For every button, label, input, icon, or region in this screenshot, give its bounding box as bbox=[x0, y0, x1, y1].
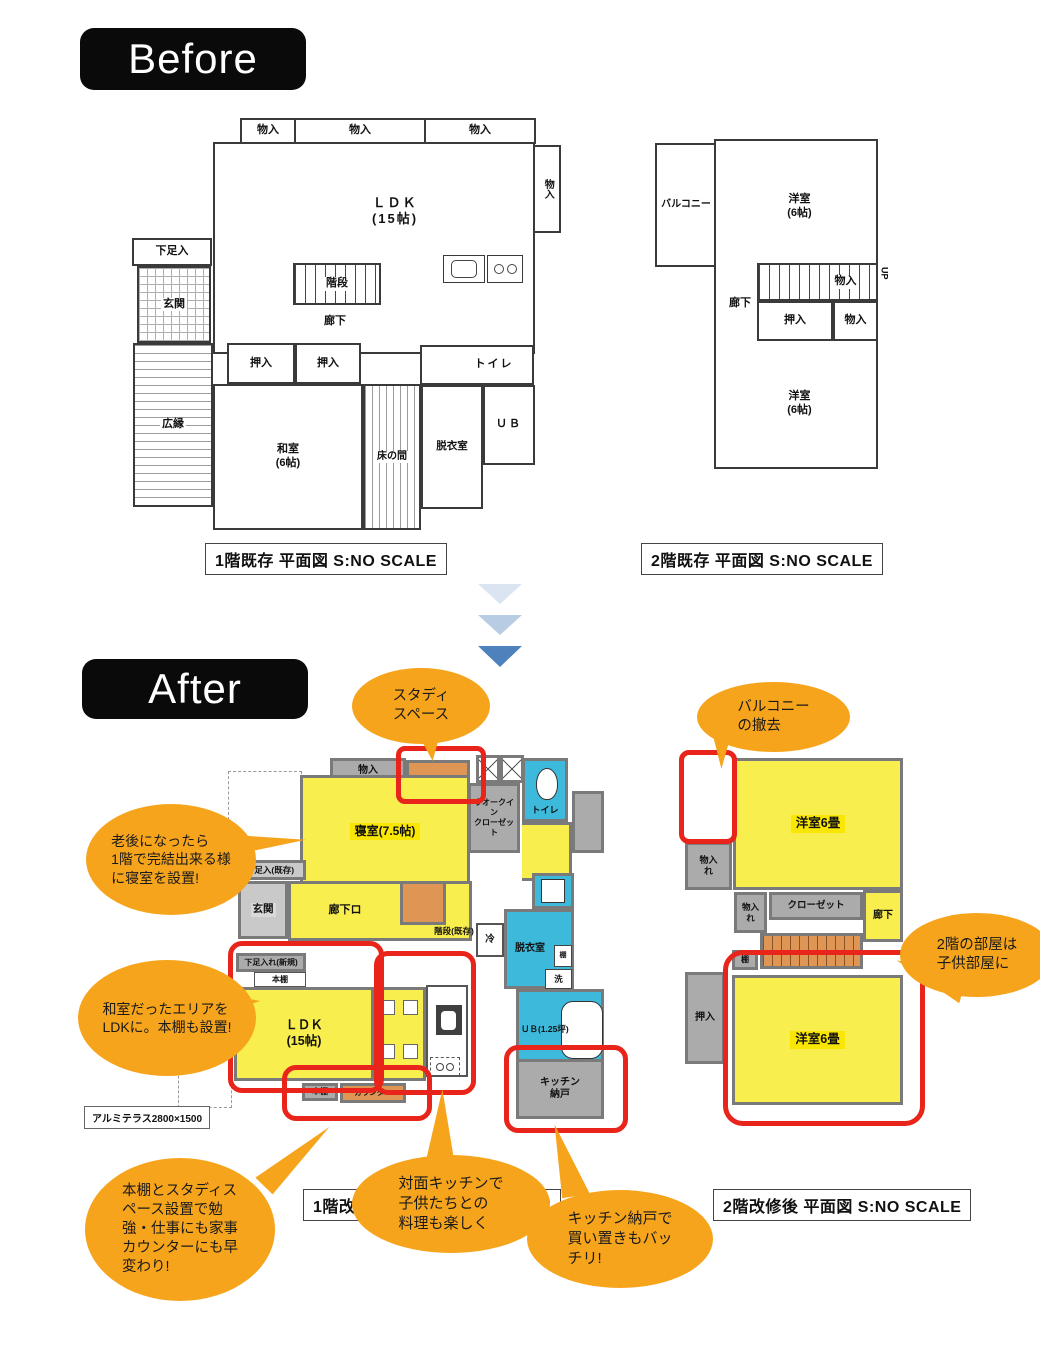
room-toilet: トイレ bbox=[420, 345, 534, 385]
room-rouka-2f-after: 廊下 bbox=[863, 890, 903, 942]
bubble-balcony-removal: バルコニー の撤去 bbox=[697, 682, 850, 752]
kitchen-sink-icon bbox=[443, 255, 485, 283]
down-arrow-icon-mid bbox=[478, 615, 522, 635]
kitchen-sink-after-icon bbox=[436, 1005, 462, 1035]
washstand-area bbox=[532, 873, 574, 909]
label-genkan-after: 玄関 bbox=[251, 903, 276, 916]
bubble-kitchen: 対面キッチンで 子供たちとの 料理も楽しく bbox=[352, 1155, 550, 1253]
caption-after-f2: 2階改修後 平面図 S:NO SCALE bbox=[713, 1189, 971, 1221]
room-storage-right: 物入 bbox=[533, 145, 561, 233]
after-badge-label: After bbox=[148, 665, 242, 713]
bubble-pantry: キッチン納戸で 買い置きもバッ チリ! bbox=[527, 1190, 713, 1288]
chair-icon bbox=[380, 1000, 395, 1015]
room-storage-2: 物入 bbox=[294, 118, 426, 144]
room-wic: ウオークイン クローゼット bbox=[468, 783, 520, 853]
bubble-study: スタディ スペース bbox=[352, 668, 490, 744]
closet-x-box bbox=[500, 755, 524, 783]
bookshelf-top: 本棚 bbox=[254, 972, 306, 987]
closet-x-box bbox=[476, 755, 500, 783]
room-closet-after: クローゼット bbox=[769, 892, 863, 920]
room-geta: 下足入 bbox=[132, 238, 212, 266]
label-toilet: トイレ bbox=[475, 358, 514, 372]
room-shinshitsu: 寝室(7.5帖) bbox=[300, 775, 470, 887]
before-floor2-plan: バルコニー 洋室 (6帖) 物入 UP 廊下 押入 物入 洋室 (6帖) bbox=[650, 135, 912, 505]
room-kaidan: 階段 bbox=[293, 263, 381, 305]
room-datsuishitsu: 脱衣室 bbox=[421, 385, 483, 509]
stove-burner-icon bbox=[436, 1063, 444, 1071]
label-datsuishitsu-after: 脱衣室 bbox=[515, 943, 545, 956]
bubble-ldk: 和室だったエリアを LDKに。本棚も設置! bbox=[78, 960, 256, 1076]
room-stairs: 物入 bbox=[757, 263, 878, 301]
room-toilet-after: トイレ bbox=[522, 758, 568, 822]
label-monoiri-stair: 物入 bbox=[833, 275, 859, 289]
room-tana-2f: 棚 bbox=[732, 950, 758, 970]
counter-area: カウンター bbox=[340, 1083, 406, 1103]
room-monoiri-2f: 物入 bbox=[833, 301, 878, 341]
sink-basin-icon bbox=[441, 1011, 456, 1030]
room-genkan-after: 玄関 bbox=[238, 881, 288, 939]
label-tokonoma: 床の間 bbox=[376, 451, 408, 464]
room-genkan: 玄関 bbox=[137, 266, 211, 343]
stove-burner-icon bbox=[507, 264, 517, 274]
label-toilet-after: トイレ bbox=[525, 805, 565, 816]
laundry-box: 洗 bbox=[545, 969, 572, 989]
toilet-icon bbox=[536, 768, 558, 800]
terrace-label-box: アルミテラス2800×1500 bbox=[84, 1106, 210, 1129]
label-kaidan: 階段 bbox=[324, 277, 350, 291]
label-genkan: 玄関 bbox=[161, 298, 187, 312]
caption-before-f1: 1階既存 平面図 S:NO SCALE bbox=[205, 543, 447, 575]
room-balcony: バルコニー bbox=[655, 143, 717, 267]
room-storage-1: 物入 bbox=[240, 118, 296, 144]
stove-burner-icon bbox=[446, 1063, 454, 1071]
stairs-after-1f bbox=[400, 881, 446, 925]
label-ldk: ＬＤＫ (15帖) bbox=[340, 195, 450, 228]
label-yoshitsu-bottom-after: 洋室6畳 bbox=[790, 1031, 844, 1049]
label-ldk-after: ＬＤＫ (15帖) bbox=[285, 1018, 323, 1049]
before-floor1-plan: 物入 物入 物入 物入 ＬＤＫ (15帖) 下足入 玄関 階段 廊下 押入 押入… bbox=[125, 115, 565, 537]
room-ub-after: ＵＢ(1.25坪) bbox=[516, 989, 604, 1065]
room-oshiire-2: 押入 bbox=[295, 343, 361, 384]
room-oshiire-1: 押入 bbox=[227, 343, 295, 384]
room-ldk-outline bbox=[213, 142, 535, 354]
label-rouka-2f: 廊下 bbox=[720, 297, 760, 311]
room-geta-shinki: 下足入れ(新規) bbox=[236, 953, 306, 972]
label-ub-after: ＵＢ(1.25坪) bbox=[521, 1024, 569, 1035]
kitchen-stove-icon bbox=[487, 255, 523, 283]
down-arrow-icon-dark bbox=[478, 646, 522, 667]
label-up: UP bbox=[878, 267, 889, 280]
washbasin-icon bbox=[541, 879, 565, 903]
bubble-kids-room: 2階の部屋は 子供部屋に bbox=[900, 913, 1040, 997]
after-badge: After bbox=[82, 659, 308, 719]
bubble-bedroom: 老後になったら 1階で完結出来る様 に寝室を設置! bbox=[86, 804, 256, 915]
renovation-before-after-sheet: Before 物入 物入 物入 物入 ＬＤＫ (15帖) 下足入 玄関 階段 廊… bbox=[0, 0, 1040, 1357]
label-rouka: 廊下 bbox=[305, 315, 365, 329]
stove-burner-icon bbox=[494, 264, 504, 274]
room-oshiire-after: 押入 bbox=[685, 972, 725, 1064]
down-arrow-icon-light bbox=[478, 584, 522, 604]
chair-icon bbox=[380, 1044, 395, 1059]
label-yoshitsu-top: 洋室 (6帖) bbox=[772, 193, 827, 221]
room-monoire-1: 物入 れ bbox=[685, 842, 732, 890]
room-yoshitsu-top-after: 洋室6畳 bbox=[733, 758, 903, 890]
before-badge-label: Before bbox=[128, 35, 258, 83]
room-oshiire-2f: 押入 bbox=[757, 301, 833, 341]
after-floor2-plan: 洋室6畳 物入 れ 物入 れ クローゼット 廊下 棚 押入 洋室6畳 bbox=[685, 750, 923, 1120]
bookshelf-bottom: 本棚 bbox=[302, 1083, 338, 1101]
room-yoshitsu-bottom-after: 洋室6畳 bbox=[732, 975, 903, 1105]
room-ub: ＵＢ bbox=[483, 385, 535, 465]
entrance-porch bbox=[572, 791, 604, 853]
bubble-bookshelf: 本棚とスタディス ペース設置で勉 強・仕事にも家事 カウンターにも早 変わり! bbox=[85, 1158, 275, 1301]
label-rouka-after: 廊下ロ bbox=[329, 904, 362, 918]
bubble-tail-pantry bbox=[551, 1121, 590, 1198]
chair-icon bbox=[403, 1000, 418, 1015]
room-kitchen-pantry: キッチン 納戸 bbox=[516, 1059, 604, 1119]
after-floor1-plan: 物入 ウオークイン クローゼット トイレ 寝室(7.5帖) 下足入(既存) 玄関… bbox=[228, 755, 648, 1127]
label-hiroen: 広縁 bbox=[160, 418, 186, 432]
shelf-box: 棚 bbox=[554, 945, 572, 967]
stairs-after-2f bbox=[760, 933, 863, 969]
stove-after-icon bbox=[430, 1057, 460, 1076]
sink-basin-icon bbox=[451, 260, 477, 278]
caption-before-f2: 2階既存 平面図 S:NO SCALE bbox=[641, 543, 883, 575]
before-badge: Before bbox=[80, 28, 306, 90]
room-washitsu: 和室 (6帖) bbox=[213, 384, 363, 530]
label-yoshitsu-bottom: 洋室 (6帖) bbox=[772, 390, 827, 418]
room-tokonoma: 床の間 bbox=[363, 384, 421, 530]
room-hiroen: 広縁 bbox=[133, 343, 213, 507]
room-monoire-2: 物入 れ bbox=[734, 892, 767, 933]
chair-icon bbox=[403, 1044, 418, 1059]
label-shinshitsu: 寝室(7.5帖) bbox=[350, 823, 421, 840]
room-storage-3: 物入 bbox=[424, 118, 536, 144]
room-rei: 冷 bbox=[476, 923, 504, 957]
kitchen-island bbox=[426, 985, 468, 1077]
label-yoshitsu-top-after: 洋室6畳 bbox=[791, 815, 845, 833]
